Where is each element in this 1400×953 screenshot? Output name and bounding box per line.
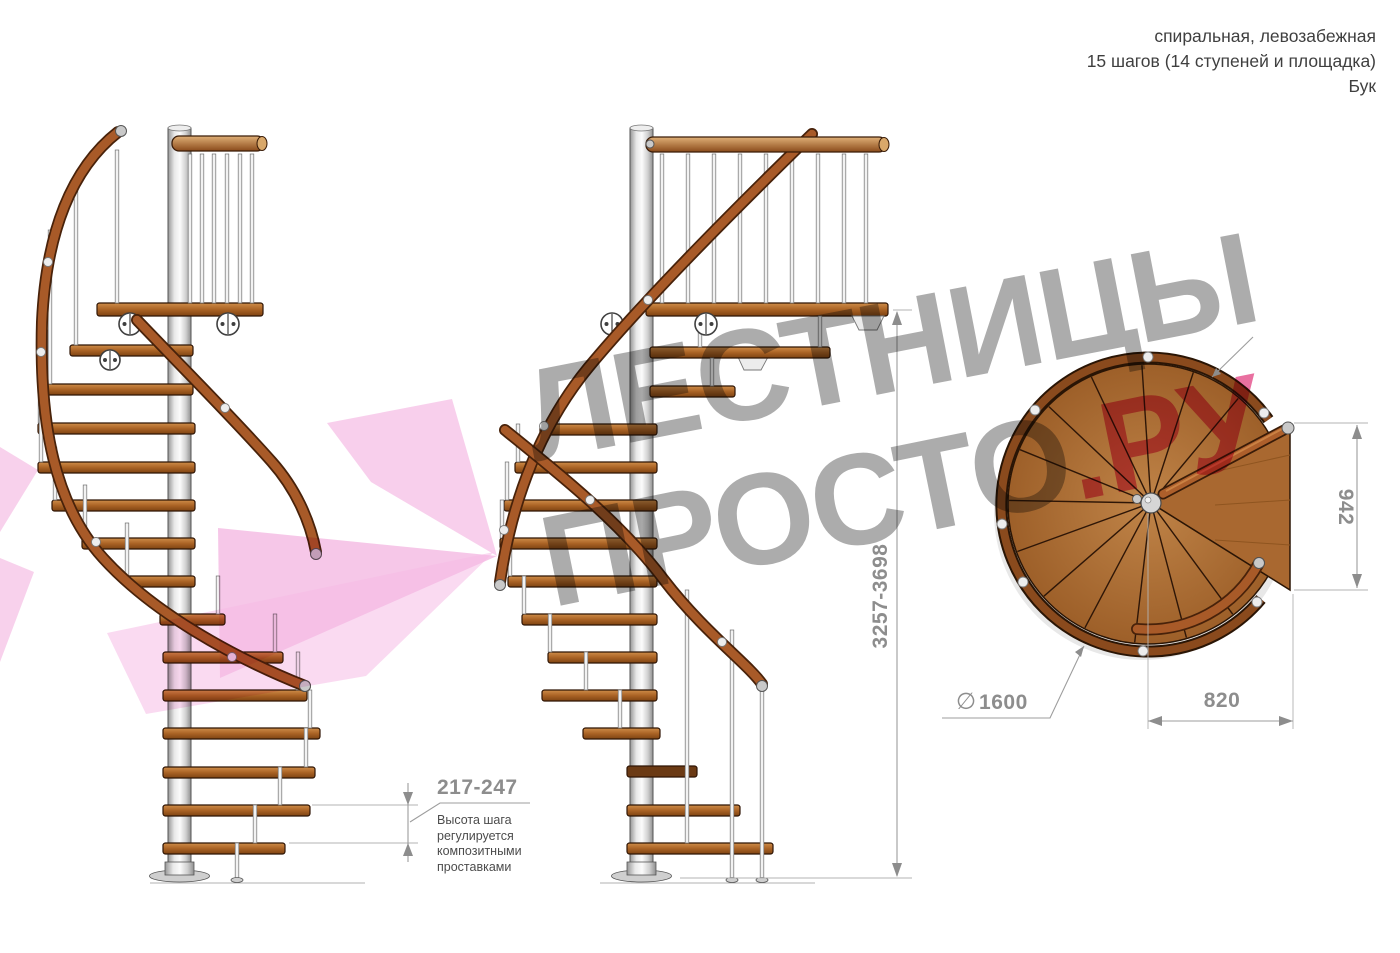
logo-arrow-shape [0,558,34,662]
note-line: регулируется [437,829,522,845]
technical-drawing-page: { "header": { "type_line": "спиральная, … [0,0,1400,953]
step-height-note: Высота шага регулируется композитными пр… [437,813,522,875]
dimension-landing-side: 942 [1333,489,1357,526]
title-block: спиральная, левозабежная 15 шагов (14 ст… [1087,24,1376,99]
note-line: композитными [437,844,522,860]
dimension-step-height: 217-247 [437,776,518,800]
stair-steps-label: 15 шагов (14 ступеней и площадка) [1087,49,1376,74]
dimension-total-height: 3257-3698 [869,544,893,649]
logo-arrow-shape [0,447,38,532]
logo-arrow-shape [327,399,497,556]
stair-type-label: спиральная, левозабежная [1087,24,1376,49]
stair-material-label: Бук [1087,74,1376,99]
dimension-landing-width: 820 [1204,689,1241,713]
note-line: проставками [437,860,522,876]
dimension-diameter: ∅1600 [956,688,1028,715]
diameter-symbol: ∅ [956,688,976,714]
diameter-value: 1600 [979,691,1028,714]
note-line: Высота шага [437,813,522,829]
